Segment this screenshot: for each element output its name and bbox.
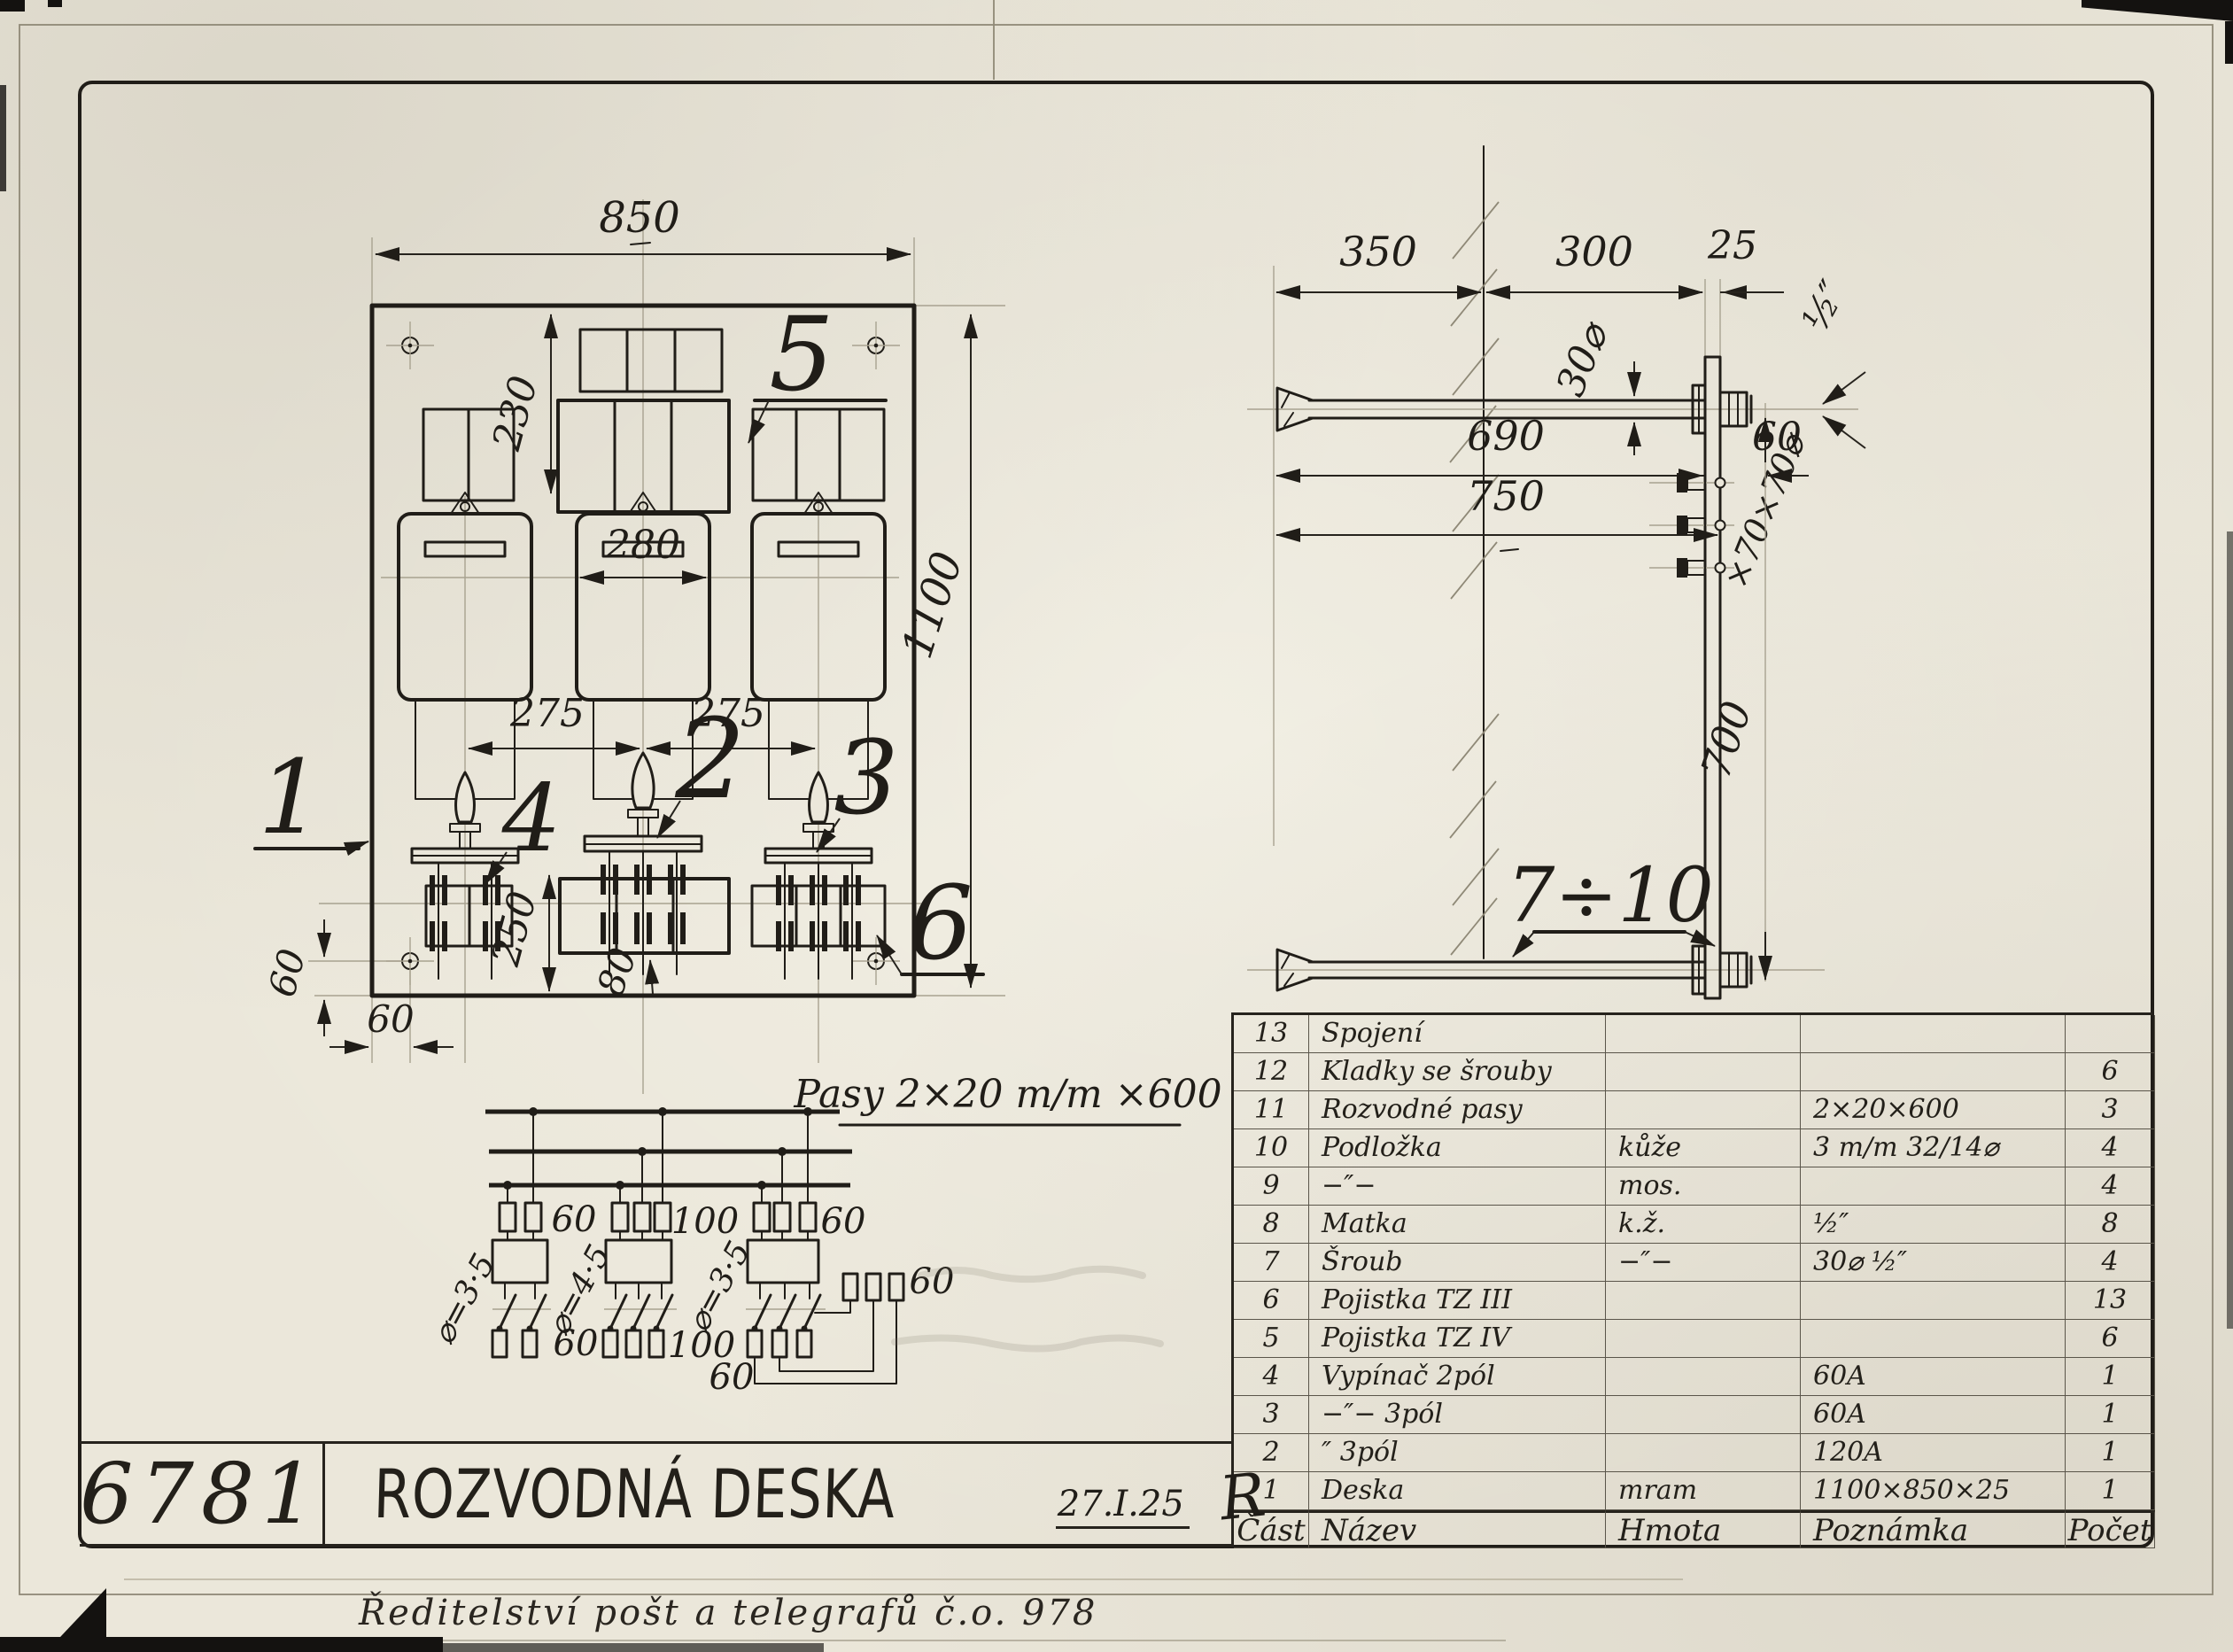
table-header-count: Počet <box>2066 1510 2155 1548</box>
table-cell-material <box>1606 1434 1801 1472</box>
table-cell-material: kůže <box>1606 1129 1801 1167</box>
table-cell-note: 30⌀ ½″ <box>1801 1244 2066 1282</box>
table-cell-part: 6 <box>1234 1282 1309 1320</box>
table-cell-part: 7 <box>1234 1244 1309 1282</box>
scan-artifact <box>48 0 62 7</box>
dim-690: 690 <box>1467 412 1545 460</box>
label-switch-left: 4 <box>501 764 562 873</box>
table-cell-material: k.ž. <box>1606 1206 1801 1244</box>
wire-dia-mid: ⌀=4·5 <box>540 1239 617 1342</box>
table-cell-material <box>1606 1396 1801 1434</box>
table-cell-part: 5 <box>1234 1320 1309 1358</box>
table-header-material: Hmota <box>1606 1510 1801 1548</box>
scan-artifact <box>2225 21 2233 64</box>
dim-fuse-offset: 80 <box>588 942 645 1002</box>
wire-dia-right: ⌀=3·5 <box>680 1236 757 1338</box>
table-cell-count: 6 <box>2066 1320 2155 1358</box>
label-fuse-top: 5 <box>769 296 833 415</box>
dim-screw-v: 60 <box>260 944 314 1001</box>
drawing-number: 6781 <box>80 1444 325 1544</box>
dim-750: 750 <box>1467 472 1545 520</box>
label-switch-middle: 2 <box>674 695 746 824</box>
table-cell-part: 13 <box>1234 1015 1309 1053</box>
table-cell-count: 6 <box>2066 1053 2155 1091</box>
upper-fuse-rating-right: 60 <box>821 1201 866 1242</box>
table-cell-count: 1 <box>2066 1358 2155 1396</box>
table-cell-note: ½″ <box>1801 1206 2066 1244</box>
scan-artifact <box>2227 531 2233 1329</box>
scan-artifact <box>443 1643 824 1652</box>
footer-rule-top <box>124 1578 1683 1580</box>
parts-table: 13 Spojení 12 Kladky se šrouby 6 11 Rozv… <box>1231 1012 2152 1547</box>
scan-artifact <box>0 85 6 191</box>
table-cell-count: 1 <box>2066 1434 2155 1472</box>
drawing-title: ROZVODNÁ DESKA <box>373 1454 896 1533</box>
table-cell-name: Deska <box>1309 1472 1606 1510</box>
wire-dia-left: ⌀=3·5 <box>425 1248 502 1351</box>
dim-700: 700 <box>1692 695 1761 784</box>
dim-screw-h: 60 <box>367 997 414 1041</box>
table-cell-material <box>1606 1015 1801 1053</box>
table-header-note: Poznámka <box>1801 1510 2066 1548</box>
table-cell-part: 11 <box>1234 1091 1309 1129</box>
table-header-name: Název <box>1309 1510 1606 1548</box>
table-cell-material: mram <box>1606 1472 1801 1510</box>
dim-300: 300 <box>1555 228 1633 275</box>
table-cell-part: 12 <box>1234 1053 1309 1091</box>
table-cell-note: 2×20×600 <box>1801 1091 2066 1129</box>
table-cell-note <box>1801 1053 2066 1091</box>
switch-right-blades <box>779 863 858 979</box>
table-cell-name: Pojistka TZ IV <box>1309 1320 1606 1358</box>
wiring-schematic: Pasy 2×20 m/m ×600 60 100 60 <box>425 1072 1221 1398</box>
table-cell-count: 4 <box>2066 1167 2155 1206</box>
fuse-strip-top <box>580 330 722 392</box>
bus-taps <box>503 1107 812 1203</box>
schematic-title: Pasy 2×20 m/m ×600 <box>793 1072 1221 1117</box>
table-cell-count: 1 <box>2066 1396 2155 1434</box>
table-cell-name: −″− 3pól <box>1309 1396 1606 1434</box>
dim-bolt-dia: 30⌀ <box>1547 314 1618 403</box>
table-cell-name: Podložka <box>1309 1129 1606 1167</box>
table-cell-count: 13 <box>2066 1282 2155 1320</box>
table-cell-count: 3 <box>2066 1091 2155 1129</box>
table-cell-material: mos. <box>1606 1167 1801 1206</box>
schematic-meter-1 <box>492 1240 547 1283</box>
dim-350: 350 <box>1339 228 1417 275</box>
front-view: 5 280 <box>255 193 1005 1094</box>
lower-fuses <box>492 1330 811 1357</box>
table-cell-count: 1 <box>2066 1472 2155 1510</box>
dim-25: 25 <box>1707 223 1757 268</box>
table-cell-note: 3 m/m 32/14⌀ <box>1801 1129 2066 1167</box>
dim-meter-width: 280 <box>605 523 680 568</box>
dim-spacing-a: 275 <box>509 691 585 736</box>
lower-fuse-rating-right: 60 <box>709 1357 755 1398</box>
table-cell-material <box>1606 1320 1801 1358</box>
label-bolt-parts: 7÷10 <box>1507 852 1713 940</box>
table-cell-name: Kladky se šrouby <box>1309 1053 1606 1091</box>
table-cell-material <box>1606 1282 1801 1320</box>
title-block: 6781 ROZVODNÁ DESKA 27.I.25 R <box>80 1441 1231 1547</box>
table-cell-note: 1100×850×25 <box>1801 1472 2066 1510</box>
upper-fuse-rating-left: 60 <box>552 1199 597 1240</box>
dim-height: 1100 <box>892 546 973 663</box>
table-cell-part: 9 <box>1234 1167 1309 1206</box>
table-cell-material <box>1606 1358 1801 1396</box>
table-cell-note <box>1801 1282 2066 1320</box>
table-cell-count: 4 <box>2066 1129 2155 1167</box>
table-cell-part: 4 <box>1234 1358 1309 1396</box>
scan-artifact <box>0 1637 443 1652</box>
title-cell: ROZVODNÁ DESKA 27.I.25 R <box>325 1444 1265 1544</box>
table-cell-name: Rozvodné pasy <box>1309 1091 1606 1129</box>
dim-offset-top: 230 <box>484 371 547 455</box>
table-cell-material <box>1606 1053 1801 1091</box>
footer-text: Ředitelství pošt a telegrafů č.o. 978 <box>359 1593 1097 1633</box>
table-cell-name: Matka <box>1309 1206 1606 1244</box>
table-cell-count: 4 <box>2066 1244 2155 1282</box>
table-cell-note: 60A <box>1801 1396 2066 1434</box>
wall-hatching <box>1450 202 1499 955</box>
dim-thread: ½″ <box>1793 274 1855 338</box>
table-cell-material: −″− <box>1606 1244 1801 1282</box>
table-cell-part: 3 <box>1234 1396 1309 1434</box>
drawing-sheet: 5 280 <box>0 0 2233 1652</box>
signature: R <box>1216 1461 1268 1535</box>
table-cell-note <box>1801 1167 2066 1206</box>
label-fuse-bottom: 6 <box>908 865 973 983</box>
table-cell-name: Šroub <box>1309 1244 1606 1282</box>
label-switch-right: 3 <box>833 719 898 838</box>
table-cell-count <box>2066 1015 2155 1053</box>
table-cell-part: 10 <box>1234 1129 1309 1167</box>
board-fasteners <box>1649 473 1734 578</box>
table-cell-material <box>1606 1091 1801 1129</box>
drawing-date: 27.I.25 <box>1056 1484 1190 1529</box>
side-view: 350 300 25 30⌀ ½″ 690 60 7 <box>1247 146 1865 998</box>
label-panel: 1 <box>258 739 322 857</box>
dim-width: 850 <box>599 193 680 243</box>
table-cell-note <box>1801 1320 2066 1358</box>
table-cell-note: 60A <box>1801 1358 2066 1396</box>
schematic-meter-3 <box>748 1240 818 1283</box>
table-cell-name: −″− <box>1309 1167 1606 1206</box>
upper-fuses <box>500 1203 816 1240</box>
table-cell-name: ″ 3pól <box>1309 1434 1606 1472</box>
table-cell-count: 8 <box>2066 1206 2155 1244</box>
table-cell-name: Spojení <box>1309 1015 1606 1053</box>
table-cell-note: 120A <box>1801 1434 2066 1472</box>
upper-fuse-rating-mid: 100 <box>671 1201 739 1242</box>
scan-artifact <box>0 0 25 12</box>
table-cell-note <box>1801 1015 2066 1053</box>
schematic-meter-2 <box>606 1240 671 1283</box>
table-cell-part: 8 <box>1234 1206 1309 1244</box>
table-cell-name: Vypínač 2pól <box>1309 1358 1606 1396</box>
table-cell-name: Pojistka TZ III <box>1309 1282 1606 1320</box>
